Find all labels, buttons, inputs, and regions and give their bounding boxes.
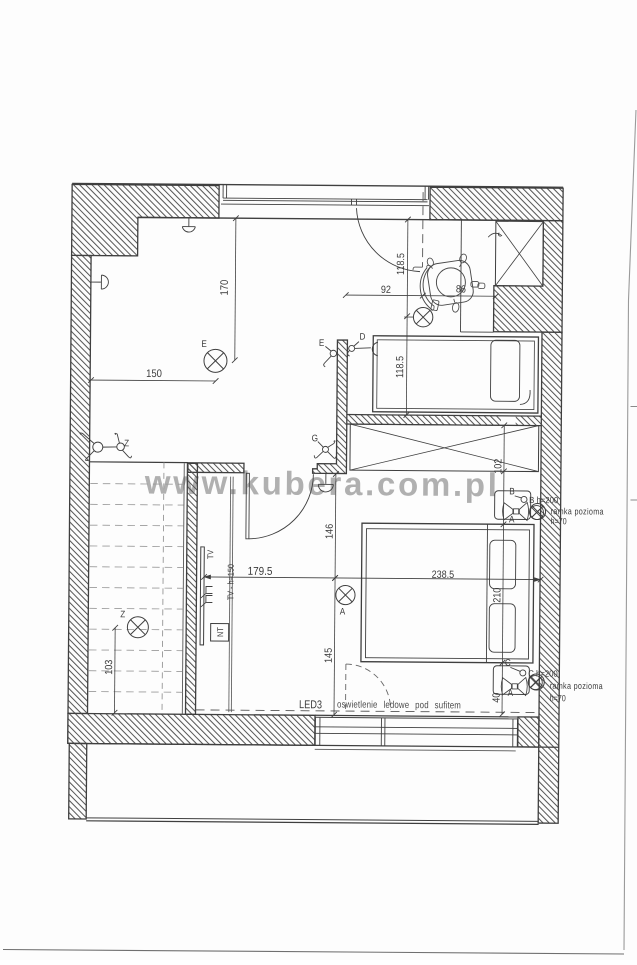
svg-text:118.5: 118.5 bbox=[395, 355, 407, 378]
svg-text:oswietlenie ledowe pod sufitem: oswietlenie ledowe pod sufitem bbox=[337, 699, 461, 711]
svg-text:B h=200: B h=200 bbox=[529, 494, 558, 505]
svg-text:G: G bbox=[312, 433, 319, 444]
svg-text:E: E bbox=[201, 338, 207, 349]
svg-text:h=70: h=70 bbox=[550, 516, 567, 526]
svg-text:E: E bbox=[319, 337, 325, 348]
svg-text:B: B bbox=[509, 486, 515, 497]
svg-text:92: 92 bbox=[381, 284, 391, 296]
svg-text:A: A bbox=[509, 514, 515, 525]
svg-text:A: A bbox=[340, 606, 346, 617]
svg-text:ramka pozioma: ramka pozioma bbox=[550, 681, 603, 691]
svg-text:103: 103 bbox=[104, 659, 116, 675]
svg-text:170: 170 bbox=[219, 279, 231, 295]
svg-text:150: 150 bbox=[146, 368, 162, 380]
svg-text:A: A bbox=[508, 687, 514, 698]
svg-text:40: 40 bbox=[491, 692, 503, 703]
svg-text:C h=200: C h=200 bbox=[528, 668, 558, 679]
svg-text:Z: Z bbox=[124, 438, 130, 449]
svg-text:NT: NT bbox=[216, 627, 226, 637]
svg-text:D: D bbox=[359, 331, 365, 342]
svg-text:238.5: 238.5 bbox=[432, 569, 455, 581]
svg-text:Z: Z bbox=[120, 609, 126, 620]
svg-text:LED3: LED3 bbox=[299, 699, 322, 711]
svg-text:h=70: h=70 bbox=[550, 693, 567, 703]
svg-text:C: C bbox=[505, 657, 512, 668]
svg-text:118.5: 118.5 bbox=[395, 252, 407, 275]
svg-text:145: 145 bbox=[323, 647, 335, 663]
svg-text:ramka pozioma: ramka pozioma bbox=[551, 506, 604, 516]
svg-text:179.5: 179.5 bbox=[248, 565, 273, 578]
svg-text:TV - h=150: TV - h=150 bbox=[226, 563, 236, 600]
svg-text:TV: TV bbox=[206, 549, 216, 559]
svg-text:102: 102 bbox=[493, 459, 505, 474]
svg-text:146: 146 bbox=[324, 523, 336, 539]
svg-text:210: 210 bbox=[492, 587, 504, 603]
